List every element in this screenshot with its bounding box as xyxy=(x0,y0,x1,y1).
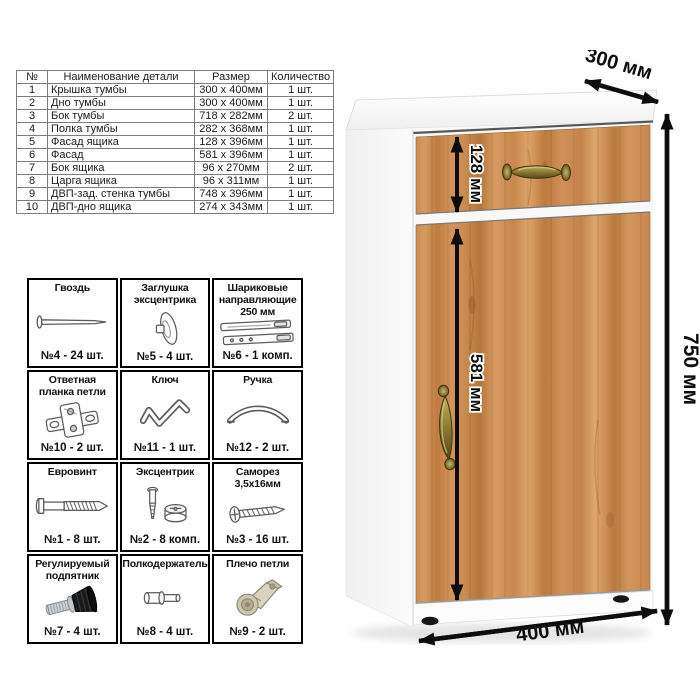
header-number: № xyxy=(17,71,48,84)
table-row: 8Царга ящика96 x 311мм1 шт. xyxy=(17,175,334,188)
hardware-item-hinge-arm: Плечо петли №9 - 2 шт. xyxy=(212,554,303,644)
hardware-item-nail: Гвоздь №4 - 24 шт. xyxy=(27,278,118,368)
table-row: 10ДВП-дно ящика274 x 343мм1 шт. xyxy=(17,201,334,214)
header-name: Наименование детали xyxy=(48,71,195,84)
ball-slides-icon xyxy=(216,318,299,350)
cabinet-side-panel xyxy=(346,128,413,627)
cabinet-door xyxy=(416,212,650,603)
nail-icon xyxy=(31,295,114,350)
header-size: Размер xyxy=(195,71,268,84)
cabinet-foot xyxy=(422,617,439,625)
handle-icon xyxy=(216,387,299,442)
hardware-item-confirmat: Евровинт №1 - 8 шт. xyxy=(27,462,118,552)
depth-dimension-label: 300 мм xyxy=(583,50,655,84)
table-row: 6Фасад581 x 396мм1 шт. xyxy=(17,149,334,162)
table-row: 7Бок ящика96 x 270мм2 шт. xyxy=(17,162,334,175)
hardware-item-hinge-plate: Ответная планка петли №10 - 2 шт. xyxy=(27,370,118,460)
screw-icon xyxy=(216,491,299,535)
table-row: 5Фасад ящика128 x 396мм1 шт. xyxy=(17,136,334,149)
cabinet-foot xyxy=(613,595,629,603)
shelf-pin-icon xyxy=(124,571,207,626)
height-dimension-label: 750 мм xyxy=(679,333,700,405)
hardware-grid: Гвоздь №4 - 24 шт. Заглушка эксцентрика … xyxy=(27,278,303,644)
table-row: 9ДВП-зад. стенка тумбы748 x 396мм1 шт. xyxy=(17,188,334,201)
table-row: 1Крышка тумбы300 x 400мм1 шт. xyxy=(17,84,334,97)
cam-cap-icon xyxy=(124,307,207,351)
hardware-item-cam-lock: Эксцентрик №2 - 8 комп. xyxy=(120,462,211,552)
adjustable-foot-icon xyxy=(31,583,114,627)
table-row: 4Полка тумбы282 x 368мм1 шт. xyxy=(17,123,334,136)
hardware-item-hex-key: Ключ №11 - 1 шт. xyxy=(120,370,211,460)
hardware-item-ball-slides: Шариковые направляющие 250 мм №6 - 1 ком… xyxy=(212,278,303,368)
parts-table-header-row: № Наименование детали Размер Количество xyxy=(17,71,334,84)
header-quantity: Количество xyxy=(268,71,334,84)
hinge-plate-icon xyxy=(31,399,114,443)
parts-table: № Наименование детали Размер Количество … xyxy=(16,70,334,214)
confirmat-screw-icon xyxy=(31,479,114,534)
assembly-sheet: № Наименование детали Размер Количество … xyxy=(0,0,700,700)
hex-key-icon xyxy=(124,387,207,442)
door-dimension-label: 581 мм xyxy=(467,354,486,412)
hardware-item-cam-cap: Заглушка эксцентрика №5 - 4 шт. xyxy=(120,278,211,368)
drawer-dimension-label: 128 мм xyxy=(467,145,486,203)
width-dimension-label: 400 мм xyxy=(515,616,586,647)
table-row: 3Бок тумбы718 x 282мм2 шт. xyxy=(17,110,334,123)
hardware-item-handle: Ручка №12 - 2 шт. xyxy=(212,370,303,460)
hardware-item-adjustable-foot: Регулируемый подпятник №7 - 4 шт. xyxy=(27,554,118,644)
cabinet-illustration: 300 мм 750 мм 128 мм 581 мм 400 мм xyxy=(330,50,700,700)
cam-lock-icon xyxy=(124,479,207,534)
hardware-item-screw: Саморез 3,5х16мм №3 - 16 шт. xyxy=(212,462,303,552)
floor-shadow xyxy=(352,623,652,643)
hinge-arm-icon xyxy=(216,571,299,626)
hardware-item-shelf-pin: Полкодержатель №8 - 4 шт. xyxy=(120,554,211,644)
table-row: 2Дно тумбы300 x 400мм1 шт. xyxy=(17,97,334,110)
